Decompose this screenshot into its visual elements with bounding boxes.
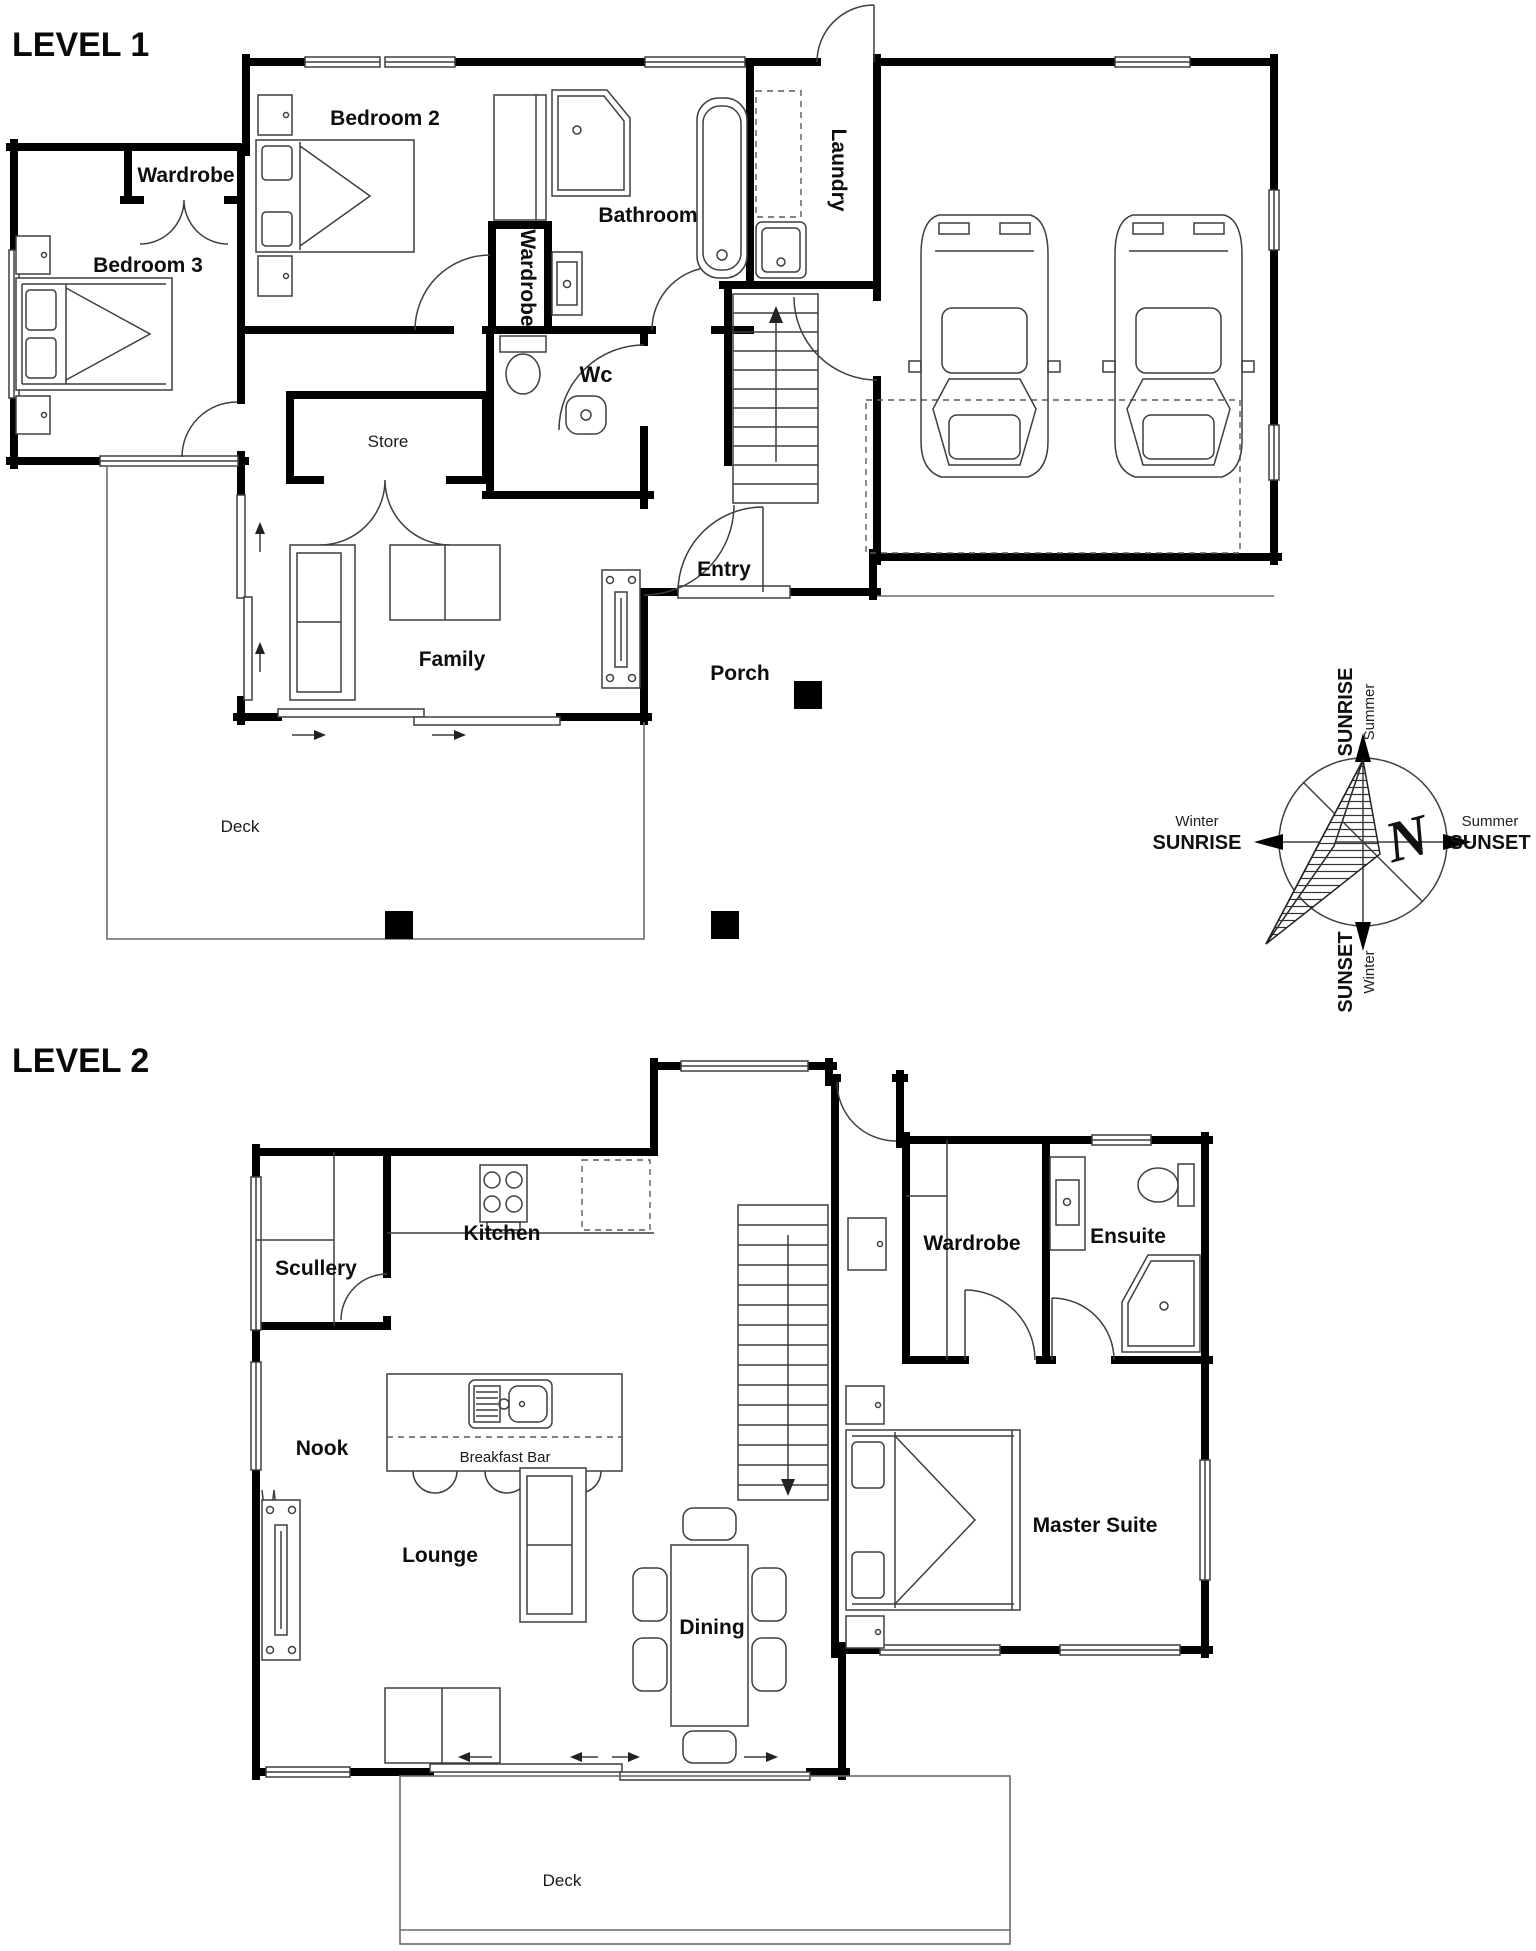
- porch-post: [794, 681, 822, 709]
- compass-bottom-big: SUNSET: [1335, 931, 1357, 1012]
- stairs-down-arrow-icon: [781, 1479, 795, 1496]
- fireplace-icon: [262, 1500, 300, 1660]
- compass-rose-icon: N SUNRISE Summer Winter SUNRISE Summer S…: [1153, 668, 1531, 1013]
- stove-icon: [480, 1165, 527, 1230]
- compass-top-big: SUNRISE: [1335, 668, 1357, 757]
- room-label-breakfast-bar: Breakfast Bar: [460, 1449, 551, 1466]
- lounge-furniture: [262, 1468, 586, 1763]
- room-label-bedroom2: Bedroom 2: [330, 107, 440, 130]
- bathroom-fixtures: [552, 90, 747, 315]
- level1-walls: [10, 58, 1278, 721]
- level2-doors: [341, 1082, 1114, 1360]
- level2-plan: LEVEL 2: [12, 1042, 1210, 1944]
- compass-right-small: Summer: [1462, 813, 1519, 830]
- room-label-bathroom: Bathroom: [598, 204, 697, 227]
- compass-bottom-small: Winter: [1361, 950, 1378, 993]
- deck-post: [385, 911, 413, 939]
- floor-plan-canvas: LEVEL 1: [0, 0, 1536, 1951]
- level2-stairs: [738, 1205, 828, 1500]
- room-label-deck2: Deck: [543, 1871, 582, 1890]
- compass-top-small: Summer: [1361, 684, 1378, 741]
- room-label-store: Store: [368, 432, 409, 451]
- stairs-up-arrow-icon: [769, 306, 783, 323]
- room-label-master-suite: Master Suite: [1033, 1514, 1158, 1537]
- level1-doors: [140, 5, 877, 598]
- room-label-dining: Dining: [679, 1616, 744, 1639]
- sink-icon: [469, 1380, 552, 1428]
- room-label-wardrobe-bed3: Wardrobe: [137, 164, 234, 187]
- room-label-deck1: Deck: [221, 817, 260, 836]
- room-label-nook: Nook: [296, 1437, 349, 1460]
- level1-stairs: [733, 294, 818, 503]
- level1-title: LEVEL 1: [12, 26, 149, 64]
- level1-plan: LEVEL 1: [9, 5, 1279, 939]
- level2-deck: [400, 1776, 1010, 1944]
- room-label-ensuite: Ensuite: [1090, 1225, 1166, 1248]
- room-label-family: Family: [419, 648, 486, 671]
- room-label-lounge: Lounge: [402, 1544, 478, 1567]
- laundry-fixtures: [756, 91, 806, 278]
- fridge-space: [582, 1160, 650, 1230]
- compass-left-small: Winter: [1175, 813, 1218, 830]
- compass-left-big: SUNRISE: [1153, 832, 1242, 854]
- room-label-wardrobe-hall: Wardrobe: [516, 229, 539, 326]
- level2-title: LEVEL 2: [12, 1042, 149, 1080]
- ensuite-fixtures: [1050, 1157, 1200, 1352]
- room-label-wc: Wc: [580, 362, 613, 387]
- level1-deck: [107, 466, 822, 939]
- room-label-porch: Porch: [710, 662, 770, 685]
- room-label-kitchen: Kitchen: [463, 1222, 540, 1245]
- room-label-entry: Entry: [697, 558, 751, 581]
- master-suite-furniture: [846, 1218, 1020, 1648]
- garage: [866, 215, 1274, 596]
- fireplace-icon: [602, 570, 640, 688]
- family-furniture: [237, 495, 640, 740]
- deck-post: [711, 911, 739, 939]
- room-label-bedroom3: Bedroom 3: [93, 254, 203, 277]
- room-label-laundry: Laundry: [827, 129, 850, 212]
- compass-right-big: SUNSET: [1449, 832, 1530, 854]
- compass-north-letter: N: [1378, 801, 1438, 875]
- room-label-wardrobe2: Wardrobe: [923, 1232, 1020, 1255]
- room-label-scullery: Scullery: [275, 1257, 357, 1280]
